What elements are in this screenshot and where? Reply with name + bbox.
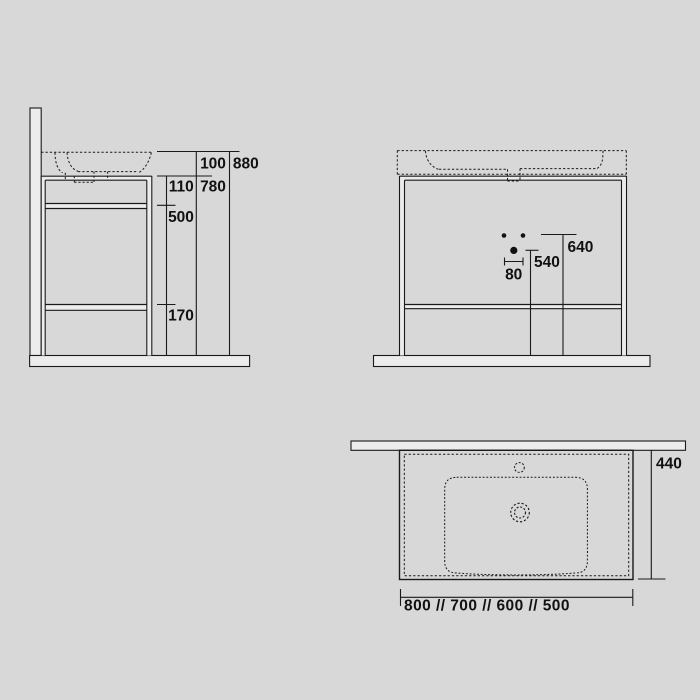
svg-text:800 // 700 // 600 // 500: 800 // 700 // 600 // 500: [404, 598, 570, 615]
svg-text:80: 80: [505, 267, 522, 284]
svg-text:880: 880: [233, 156, 259, 173]
svg-text:100: 100: [200, 156, 226, 173]
svg-text:170: 170: [168, 308, 194, 325]
svg-text:110: 110: [169, 179, 194, 196]
svg-text:440: 440: [656, 456, 682, 473]
svg-text:640: 640: [568, 239, 594, 256]
svg-text:780: 780: [200, 179, 226, 196]
svg-text:540: 540: [534, 254, 560, 271]
svg-text:500: 500: [168, 209, 194, 226]
